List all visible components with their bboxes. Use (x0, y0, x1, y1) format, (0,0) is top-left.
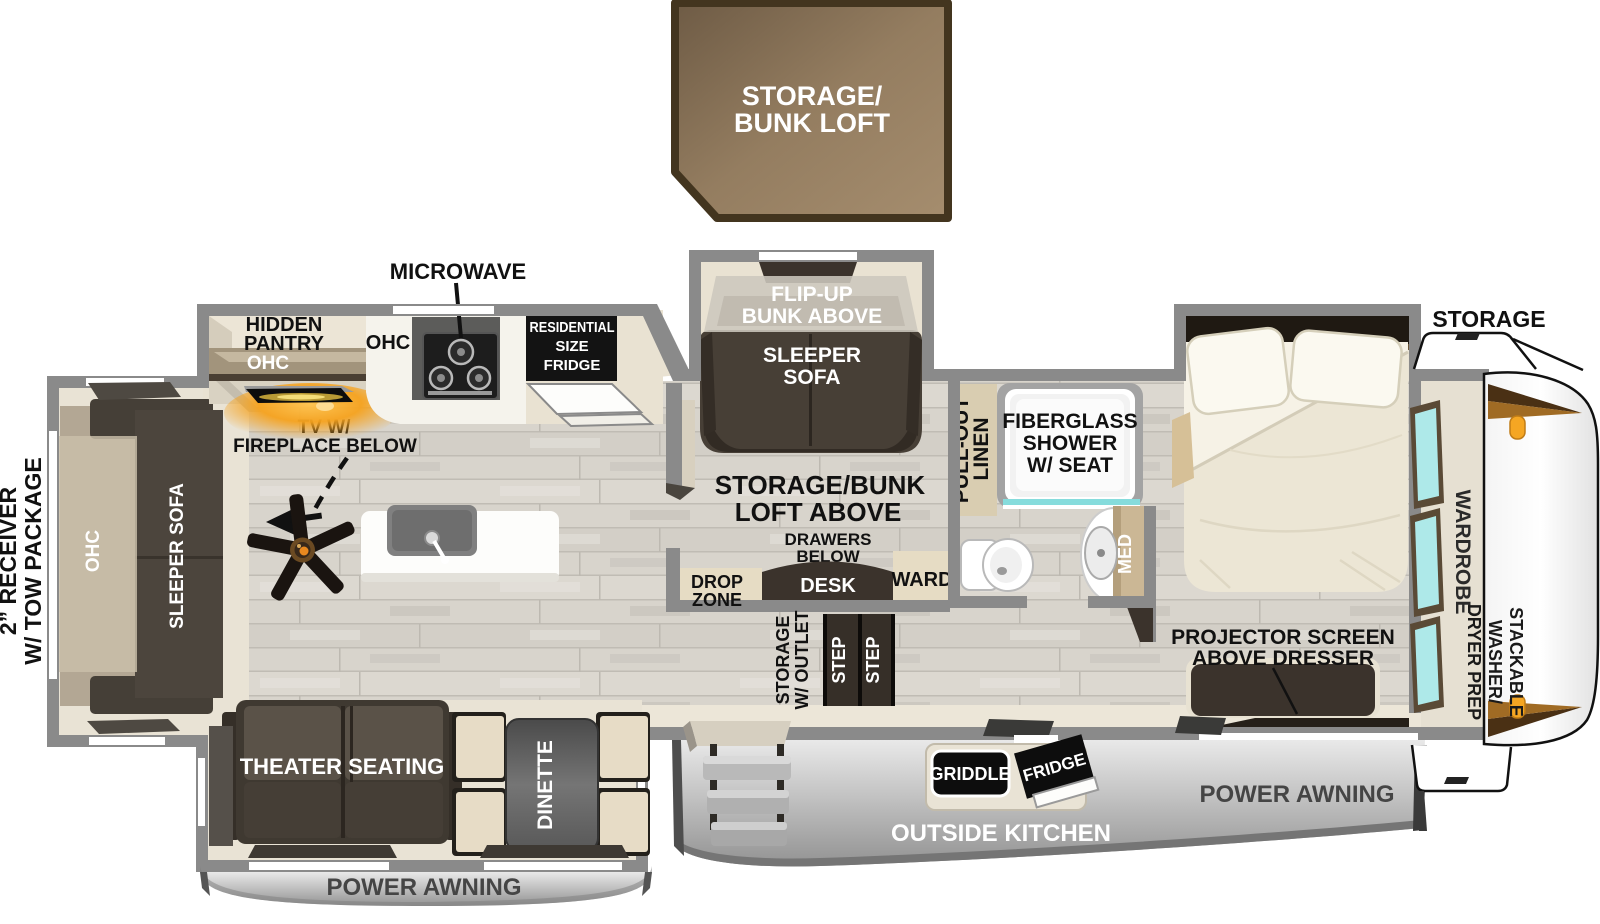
svg-text:OUTSIDE KITCHEN: OUTSIDE KITCHEN (891, 820, 1111, 847)
svg-text:STORAGE: STORAGE (1432, 306, 1545, 332)
svg-text:LOFT ABOVE: LOFT ABOVE (735, 497, 902, 527)
svg-text:MED: MED (1115, 534, 1135, 574)
svg-text:2” RECEIVER: 2” RECEIVER (0, 486, 21, 635)
svg-text:STORAGE: STORAGE (773, 616, 793, 705)
svg-text:FLIP-UP: FLIP-UP (771, 283, 853, 306)
svg-text:DRYER PREP: DRYER PREP (1464, 604, 1484, 720)
svg-text:W/ OUTLET: W/ OUTLET (792, 611, 812, 710)
svg-text:PROJECTOR SCREEN: PROJECTOR SCREEN (1171, 626, 1395, 649)
svg-text:STEP: STEP (863, 636, 883, 683)
svg-text:W/ SEAT: W/ SEAT (1027, 454, 1113, 477)
svg-text:WARD: WARD (891, 569, 952, 591)
svg-text:STORAGE/BUNK: STORAGE/BUNK (715, 470, 926, 500)
svg-text:SLEEPER SOFA: SLEEPER SOFA (167, 483, 188, 629)
svg-text:STORAGE/: STORAGE/ (742, 81, 883, 111)
svg-text:POWER AWNING: POWER AWNING (326, 874, 521, 901)
svg-text:OHC: OHC (247, 353, 290, 374)
svg-text:FRIDGE: FRIDGE (544, 357, 601, 374)
svg-text:ABOVE DRESSER: ABOVE DRESSER (1192, 647, 1374, 670)
svg-text:W/ TOW PACKAGE: W/ TOW PACKAGE (20, 457, 46, 664)
svg-text:BUNK ABOVE: BUNK ABOVE (742, 305, 882, 328)
svg-text:OHC: OHC (83, 530, 104, 573)
svg-text:STACKABLE: STACKABLE (1506, 607, 1526, 717)
svg-text:ZONE: ZONE (692, 590, 742, 610)
svg-text:GRIDDLE: GRIDDLE (930, 764, 1011, 784)
svg-text:DESK: DESK (800, 575, 856, 597)
svg-text:PANTRY: PANTRY (244, 333, 325, 355)
svg-text:POWER AWNING: POWER AWNING (1199, 781, 1394, 808)
svg-text:FIBERGLASS: FIBERGLASS (1002, 410, 1137, 433)
svg-text:STEP: STEP (829, 636, 849, 683)
svg-text:THEATER SEATING: THEATER SEATING (240, 754, 445, 779)
svg-text:LINEN: LINEN (970, 418, 993, 481)
svg-text:SLEEPER: SLEEPER (763, 344, 861, 367)
svg-text:OHC: OHC (366, 332, 410, 354)
svg-text:WARDROBE: WARDROBE (1451, 490, 1474, 615)
svg-text:SIZE: SIZE (555, 338, 588, 355)
svg-text:MICROWAVE: MICROWAVE (390, 259, 526, 284)
svg-text:DROP: DROP (691, 572, 743, 592)
svg-text:RESIDENTIAL: RESIDENTIAL (530, 319, 615, 336)
svg-text:SHOWER: SHOWER (1023, 432, 1118, 455)
svg-text:BUNK LOFT: BUNK LOFT (734, 108, 890, 138)
svg-text:SOFA: SOFA (783, 366, 840, 389)
svg-text:WASHER/: WASHER/ (1485, 620, 1505, 704)
svg-text:DINETTE: DINETTE (534, 740, 557, 830)
